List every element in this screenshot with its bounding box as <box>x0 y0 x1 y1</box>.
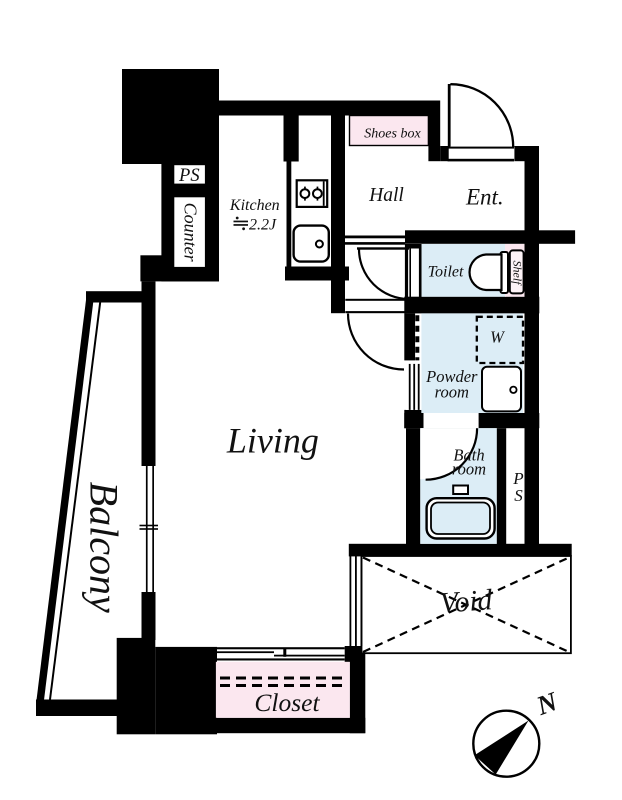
svg-text:Kitchen: Kitchen <box>229 197 280 214</box>
svg-text:Ent.: Ent. <box>465 185 504 210</box>
svg-text:Shelf: Shelf <box>511 261 525 287</box>
svg-text:Hall: Hall <box>368 185 404 206</box>
svg-text:W: W <box>490 328 505 347</box>
svg-text:Counter: Counter <box>181 203 201 263</box>
svg-text:2.2J: 2.2J <box>249 217 277 234</box>
svg-text:room: room <box>435 383 469 402</box>
svg-text:Void: Void <box>439 584 494 620</box>
svg-text:Balcony: Balcony <box>82 482 127 613</box>
svg-text:Toilet: Toilet <box>428 264 464 281</box>
svg-text:Closet: Closet <box>254 688 320 717</box>
svg-text:Living: Living <box>226 421 319 461</box>
svg-text:room: room <box>452 460 486 479</box>
svg-text:Shoes box: Shoes box <box>364 127 421 142</box>
svg-text:PS: PS <box>178 166 200 186</box>
svg-text:S: S <box>514 486 523 505</box>
